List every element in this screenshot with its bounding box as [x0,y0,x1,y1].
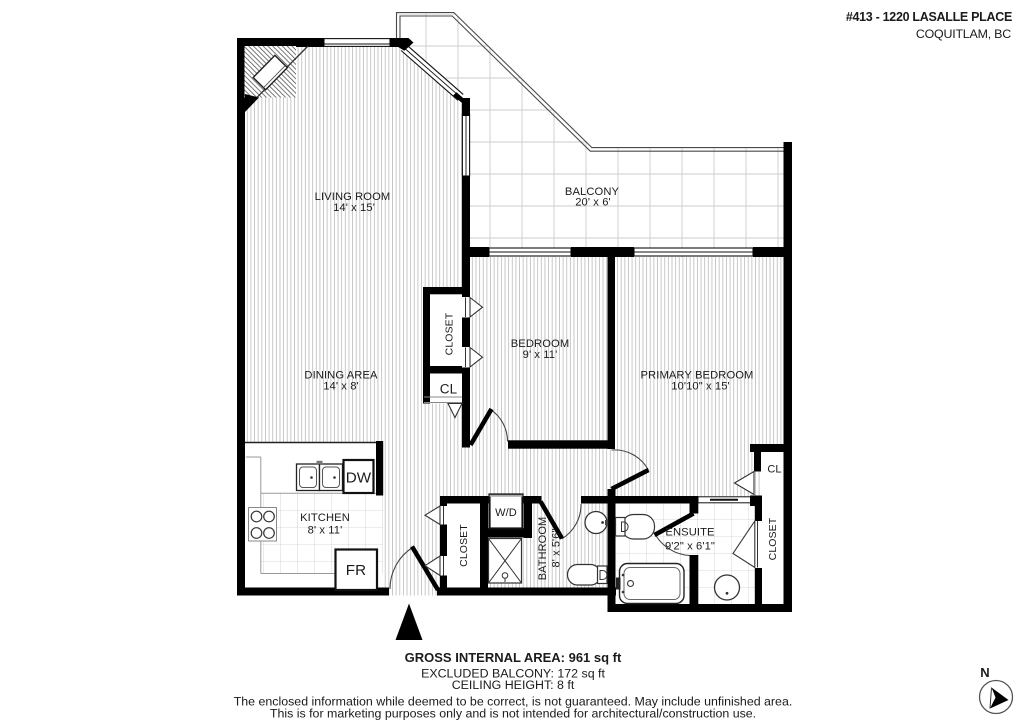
svg-text:CEILING HEIGHT: 8 ft: CEILING HEIGHT: 8 ft [452,678,575,692]
svg-text:14' x 8': 14' x 8' [323,381,359,393]
svg-text:8' x 5'6": 8' x 5'6" [551,529,563,568]
svg-text:CLOSET: CLOSET [444,312,456,355]
svg-text:ENSUITE: ENSUITE [665,527,714,539]
svg-text:FR: FR [346,562,366,579]
svg-text:W/D: W/D [495,507,517,519]
svg-text:KITCHEN: KITCHEN [300,512,350,524]
svg-text:CL: CL [440,382,458,397]
svg-text:10'10" x 15': 10'10" x 15' [671,381,730,393]
svg-text:#413 - 1220 LASALLE PLACE: #413 - 1220 LASALLE PLACE [846,10,1012,24]
svg-text:DW: DW [346,470,372,487]
svg-text:9' x 11': 9' x 11' [523,349,558,361]
svg-text:CLOSET: CLOSET [458,524,470,567]
svg-text:8' x 11': 8' x 11' [308,525,343,537]
svg-text:GROSS INTERNAL AREA: 961 sq ft: GROSS INTERNAL AREA: 961 sq ft [405,650,622,665]
svg-text:CLOSET: CLOSET [767,517,779,560]
svg-text:20' x 6': 20' x 6' [575,197,611,209]
svg-text:N: N [980,665,989,680]
svg-text:14' x 15': 14' x 15' [333,202,375,214]
svg-text:This is for marketing purposes: This is for marketing purposes only and … [270,707,756,721]
svg-text:COQUITLAM, BC: COQUITLAM, BC [916,27,1011,41]
svg-text:9'2" x 6'1": 9'2" x 6'1" [665,541,715,553]
svg-text:CL: CL [767,464,781,476]
svg-text:BATHROOM: BATHROOM [537,517,549,581]
